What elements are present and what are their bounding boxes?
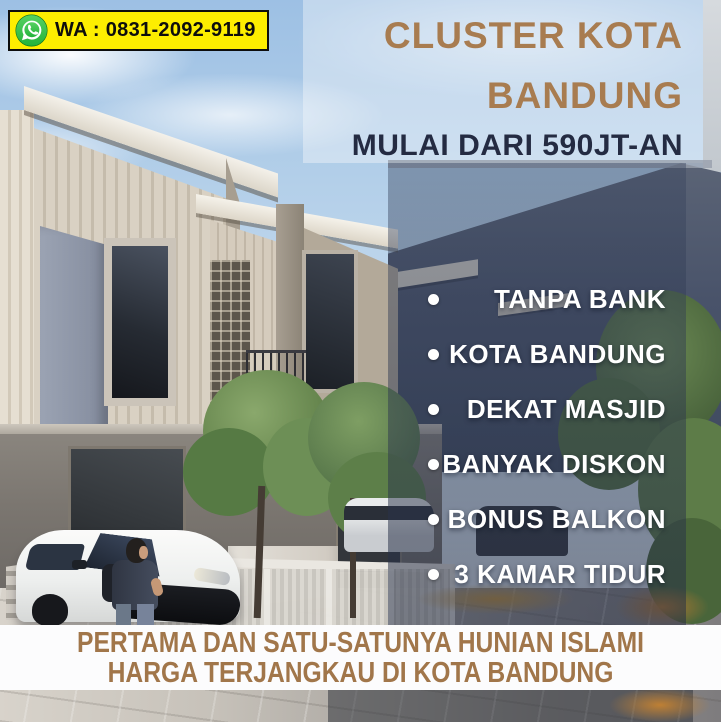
feature-label: BONUS BALKON — [448, 504, 666, 535]
feature-label: KOTA BANDUNG — [449, 339, 666, 370]
far-building-pillar — [703, 0, 721, 172]
footer-line-1: PERTAMA DAN SATU-SATUNYA HUNIAN ISLAMI — [77, 628, 644, 658]
title-line-2: BANDUNG — [352, 66, 683, 126]
car-mirror — [72, 560, 87, 569]
window-glass — [302, 250, 358, 393]
car-wheel — [32, 594, 68, 626]
feature-label: TANPA BANK — [494, 284, 666, 315]
whatsapp-number: WA : 0831-2092-9119 — [55, 19, 256, 42]
feature-label: DEKAT MASJID — [467, 394, 666, 425]
bullet-icon — [428, 294, 439, 305]
price-subtitle: MULAI DARI 590JT-AN — [352, 128, 683, 164]
house-fin-panel — [40, 226, 108, 440]
window-glass — [112, 246, 168, 398]
feature-item: BANYAK DISKON — [428, 437, 666, 492]
property-flyer: WA : 0831-2092-9119 CLUSTER KOTA BANDUNG… — [0, 0, 721, 722]
footer-line-2: HARGA TERJANGKAU DI KOTA BANDUNG — [108, 658, 614, 688]
feature-item: 3 KAMAR TIDUR — [428, 547, 666, 602]
whatsapp-icon — [15, 14, 48, 47]
feature-item: DEKAT MASJID — [428, 382, 666, 437]
feature-label: 3 KAMAR TIDUR — [454, 559, 666, 590]
person-legs — [116, 604, 154, 625]
footer-banner: PERTAMA DAN SATU-SATUNYA HUNIAN ISLAMI H… — [0, 625, 721, 690]
bullet-icon — [428, 404, 439, 415]
whatsapp-contact-badge[interactable]: WA : 0831-2092-9119 — [8, 10, 269, 51]
feature-label: BANYAK DISKON — [442, 449, 666, 480]
feature-item: TANPA BANK — [428, 272, 666, 327]
title-line-1: CLUSTER KOTA — [352, 6, 683, 66]
bullet-icon — [428, 514, 439, 525]
feature-item: BONUS BALKON — [428, 492, 666, 547]
person-face — [139, 546, 148, 559]
feature-list: TANPA BANK KOTA BANDUNG DEKAT MASJID BAN… — [428, 272, 666, 602]
bullet-icon — [428, 569, 439, 580]
bullet-icon — [428, 459, 439, 470]
feature-item: KOTA BANDUNG — [428, 327, 666, 382]
orange-shrub — [610, 688, 710, 722]
bullet-icon — [428, 349, 439, 360]
header: CLUSTER KOTA BANDUNG MULAI DARI 590JT-AN — [352, 6, 683, 164]
